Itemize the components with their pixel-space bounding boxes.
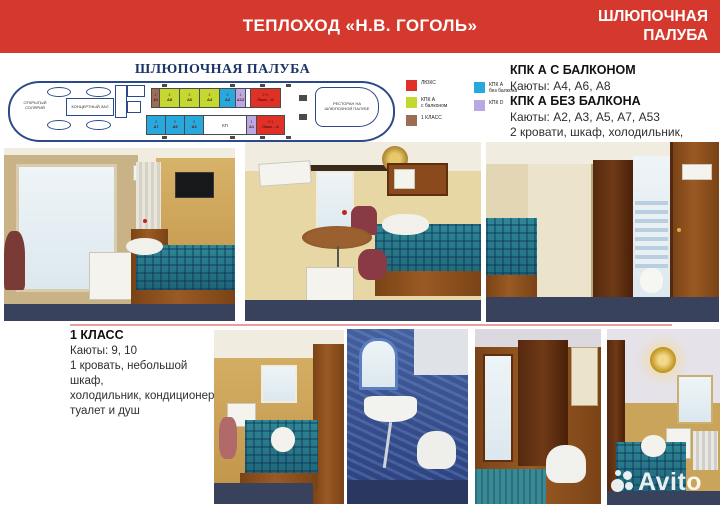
legend-label: КПК А с балконом	[421, 97, 447, 109]
deck-fitting	[230, 136, 235, 139]
avito-watermark: Avito	[611, 461, 719, 503]
kpk-no-balcony-heading: КПК А БЕЗ БАЛКОНА	[510, 94, 641, 108]
first-class-cabins: Каюты: 9, 10	[70, 345, 137, 357]
cabin-Люкс - Б: 2+1Люкс - Б	[250, 88, 281, 108]
photo-first-class-cabin	[214, 330, 344, 504]
cabin-А2: 2А2	[219, 88, 236, 108]
legend-label: ЛЮКС	[421, 80, 436, 87]
cabin-А5: 2А5	[165, 115, 185, 135]
legend-swatch	[406, 97, 417, 108]
cabin-А4: 2А4	[199, 88, 220, 108]
cabin-Люкс - А: 2+1Люкс - А	[256, 115, 285, 135]
first-class-desc-line3: туалет и душ	[70, 405, 140, 417]
deck-structure-stairs	[127, 101, 141, 113]
cabin-row-top: 1102А82А62А42А21А122+1Люкс - Б	[152, 88, 281, 108]
first-class-desc-line2: холодильник, кондиционер,	[70, 390, 218, 402]
legend-swatch	[406, 115, 417, 126]
deck-fitting	[162, 136, 167, 139]
cabin-А8: 2А8	[159, 88, 180, 108]
deck-name-line1: ШЛЮПОЧНАЯ	[598, 7, 708, 26]
deck-fitting	[299, 114, 307, 120]
legend-swatch	[474, 100, 485, 111]
legend-item-kpkA_balcony: КПК А с балконом	[406, 97, 447, 109]
photo-shower-room-wood	[475, 329, 601, 504]
photo-cabin-with-balcony	[4, 148, 235, 321]
legend-item-first: 1 КЛАСС	[406, 115, 447, 126]
solarium-oval	[47, 120, 71, 130]
flyer-page: ТЕПЛОХОД «Н.В. ГОГОЛЬ» ШЛЮПОЧНАЯ ПАЛУБА …	[0, 0, 720, 508]
deck-fitting	[286, 136, 291, 139]
cabin-А6: 2А6	[179, 88, 200, 108]
deck-structure-stairs	[127, 85, 145, 97]
deck-name-label: ШЛЮПОЧНАЯ ПАЛУБА	[598, 7, 708, 45]
plan-legend-column-1: ЛЮКСКПК А с балконом1 КЛАСС	[406, 80, 447, 126]
deck-fitting	[260, 136, 265, 139]
kpk-balcony-heading: КПК А С БАЛКОНОМ	[510, 63, 636, 77]
cabin-А7: 2А7	[146, 115, 166, 135]
header-bar: ТЕПЛОХОД «Н.В. ГОГОЛЬ» ШЛЮПОЧНАЯ ПАЛУБА	[0, 0, 720, 53]
deck-fitting	[299, 95, 307, 101]
restaurant-label: РЕСТОРАН НА ШЛЮПОЧНОЙ ПАЛУБЕ	[324, 102, 370, 111]
cabin-info-first-class: 1 КЛАСС Каюты: 9, 10 1 кровать, небольшо…	[70, 328, 220, 419]
deck-plan-title: ШЛЮПОЧНАЯ ПАЛУБА	[120, 62, 325, 78]
avito-logo-icon	[611, 469, 635, 495]
solarium-oval	[86, 120, 111, 130]
deck-name-line2: ПАЛУБА	[598, 26, 708, 45]
deck-area-restaurant: РЕСТОРАН НА ШЛЮПОЧНОЙ ПАЛУБЕ	[315, 87, 379, 127]
deck-fitting	[286, 84, 291, 87]
photo-bathroom-blue	[347, 329, 468, 504]
legend-label: 1 КЛАСС	[421, 115, 442, 122]
legend-swatch	[474, 82, 485, 93]
photo-cabin-two-beds	[245, 142, 481, 321]
legend-item-lux: ЛЮКС	[406, 80, 447, 91]
deck-area-concert-hall: КОНЦЕРТНЫЙ ЗАЛ	[66, 98, 114, 116]
deck-fitting	[260, 84, 265, 87]
kpk-desc-line1: 2 кровати, шкаф, холодильник,	[510, 125, 683, 139]
deck-fitting	[230, 84, 235, 87]
section-divider-line	[70, 324, 672, 326]
deck-area-kp: КП	[203, 115, 247, 135]
solarium-oval	[86, 87, 111, 97]
deck-structure-stairs	[115, 85, 127, 118]
cabin-А3: 2А3	[184, 115, 204, 135]
first-class-heading: 1 КЛАСС	[70, 328, 124, 342]
deck-area-solarium: ОТКРЫТЫЙ СОЛЯРИЙ	[16, 101, 54, 110]
legend-label: КПК D	[489, 100, 503, 107]
kpk-no-balcony-cabins: Каюты: А2, А3, А5, А7, А53	[510, 110, 660, 124]
solarium-oval	[47, 87, 71, 97]
cabin-row-bottom: 2А72А52А3КП1А12+1Люкс - А	[147, 115, 285, 135]
deck-fitting	[162, 84, 167, 87]
kpk-balcony-cabins: Каюты: А4, А6, А8	[510, 79, 611, 93]
first-class-desc-line1: 1 кровать, небольшой шкаф,	[70, 360, 187, 387]
legend-swatch	[406, 80, 417, 91]
photo-cabin-with-bathroom-door	[486, 142, 719, 322]
avito-watermark-text: Avito	[638, 468, 702, 497]
